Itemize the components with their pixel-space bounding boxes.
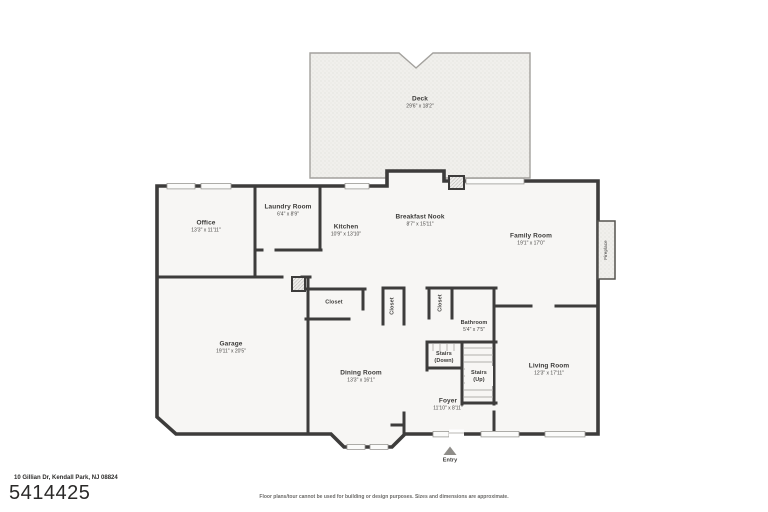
floor-plan-page: Deck 29'6" x 18'2" Office 13'3" x 11'11"… <box>0 0 768 512</box>
property-address: 10 Gillian Dr, Kendall Park, NJ 08824 <box>14 475 118 481</box>
room-label-stairs-down: Stairs (Down) <box>434 351 453 365</box>
room-label-office: Office 13'3" x 11'11" <box>191 220 220 235</box>
room-label-hall-closet: Closet <box>325 299 342 306</box>
room-label-laundry: Laundry Room 6'4" x 8'9" <box>264 204 311 219</box>
room-label-deck: Deck 29'6" x 18'2" <box>406 96 433 111</box>
room-label-garage: Garage 19'11" x 20'5" <box>216 341 246 356</box>
room-label-breakfast-nook: Breakfast Nook 8'7" x 15'11" <box>395 214 444 229</box>
room-label-dining-closet: Closet <box>389 297 396 314</box>
chimney-box <box>449 176 464 189</box>
utility-box <box>292 277 305 291</box>
room-label-family-room: Family Room 19'1" x 17'0" <box>510 233 552 248</box>
disclaimer-text: Floor plans/tour cannot be used for buil… <box>259 494 508 500</box>
room-label-bath-closet: Closet <box>437 294 444 311</box>
room-label-foyer: Foyer 11'10" x 8'11" <box>433 398 462 413</box>
entry-opening <box>449 430 464 439</box>
room-label-bathroom: Bathroom 5'4" x 7'5" <box>461 320 488 334</box>
room-label-fireplace: Fireplace <box>603 240 609 259</box>
listing-number: 5414425 <box>9 482 90 505</box>
room-label-living-room: Living Room 12'3" x 17'11" <box>529 363 569 378</box>
deck-outline <box>310 53 530 178</box>
room-label-stairs-up: Stairs (Up) <box>471 370 487 384</box>
room-label-kitchen: Kitchen 10'9" x 13'10" <box>331 224 361 239</box>
floor-plan-drawing <box>0 0 768 512</box>
house-floor-fill <box>157 171 598 447</box>
room-label-dining-room: Dining Room 13'3" x 16'1" <box>340 370 382 385</box>
room-label-entry: Entry <box>443 457 458 464</box>
entry-arrow-icon <box>444 447 457 456</box>
